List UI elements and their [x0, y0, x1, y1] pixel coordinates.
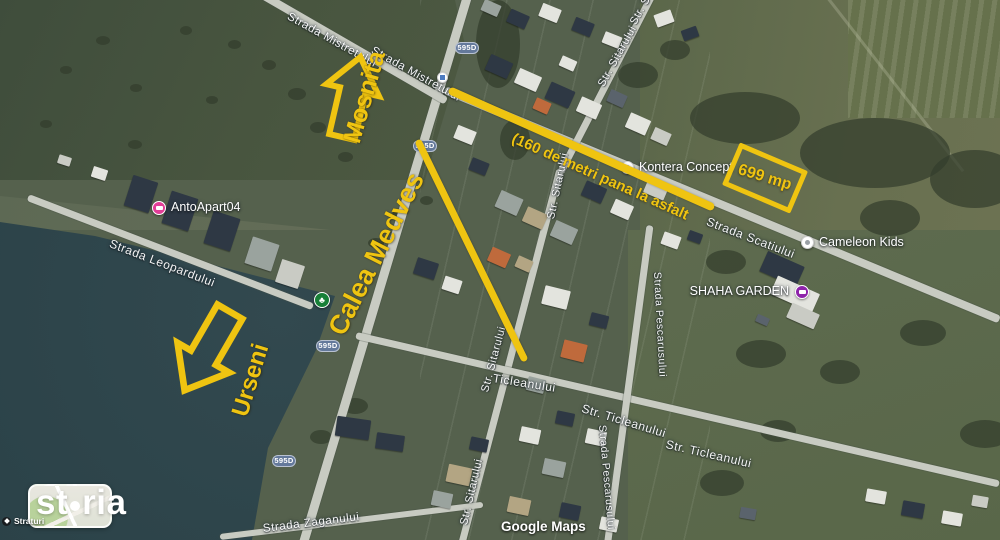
tree-patch — [820, 360, 860, 384]
storia-logo: st ria — [36, 483, 126, 523]
tree-patch — [700, 470, 744, 496]
layers-icon — [2, 517, 11, 526]
brand-text-right: ria — [82, 483, 126, 523]
poi-label[interactable]: SHAHA GARDEN — [690, 284, 789, 298]
route-shield: 595D — [316, 340, 340, 352]
tree-patch — [60, 66, 72, 74]
lodging-icon[interactable] — [795, 285, 809, 299]
tree-patch — [206, 96, 218, 104]
tree-patch — [130, 84, 142, 92]
google-maps-watermark[interactable]: Google Maps — [501, 519, 586, 534]
tree-patch — [180, 26, 192, 35]
poi-label[interactable]: Cameleon Kids — [819, 235, 904, 249]
transit-icon[interactable] — [437, 72, 448, 83]
route-shield: 595D — [272, 455, 296, 467]
tree-patch — [262, 60, 276, 70]
tree-patch — [706, 250, 746, 274]
poi-label[interactable]: AntoApart04 — [171, 200, 241, 214]
tree-patch — [40, 120, 52, 128]
tree-patch — [338, 152, 353, 162]
brand-text-left: st — [36, 483, 68, 523]
park-icon[interactable]: ♣ — [314, 292, 330, 308]
tree-patch — [96, 36, 110, 45]
tree-patch — [800, 118, 950, 188]
tree-patch — [618, 62, 658, 88]
lodging-icon[interactable] — [152, 201, 166, 215]
tree-patch — [736, 340, 786, 368]
tree-patch — [860, 200, 920, 236]
tree-patch — [900, 320, 946, 346]
tree-patch — [288, 88, 306, 100]
field-patch — [0, 0, 465, 180]
building — [335, 416, 371, 441]
route-shield: 595D — [455, 42, 479, 54]
tree-patch — [228, 40, 241, 49]
field-patch — [848, 0, 1000, 118]
tree-patch — [128, 140, 142, 149]
brand-o-glyph — [70, 501, 80, 511]
tree-patch — [690, 92, 800, 144]
poi-label[interactable]: Kontera Concept — [639, 160, 733, 174]
satellite-map[interactable]: Strada MistretuluiStrada MistretuluiStr.… — [0, 0, 1000, 540]
building — [244, 236, 279, 271]
parcel-lines — [420, 0, 710, 540]
place-icon[interactable] — [801, 236, 814, 249]
building — [203, 211, 240, 252]
plot-area-label: 699 mp — [736, 161, 794, 194]
tree-patch — [660, 40, 690, 60]
building — [375, 432, 405, 452]
